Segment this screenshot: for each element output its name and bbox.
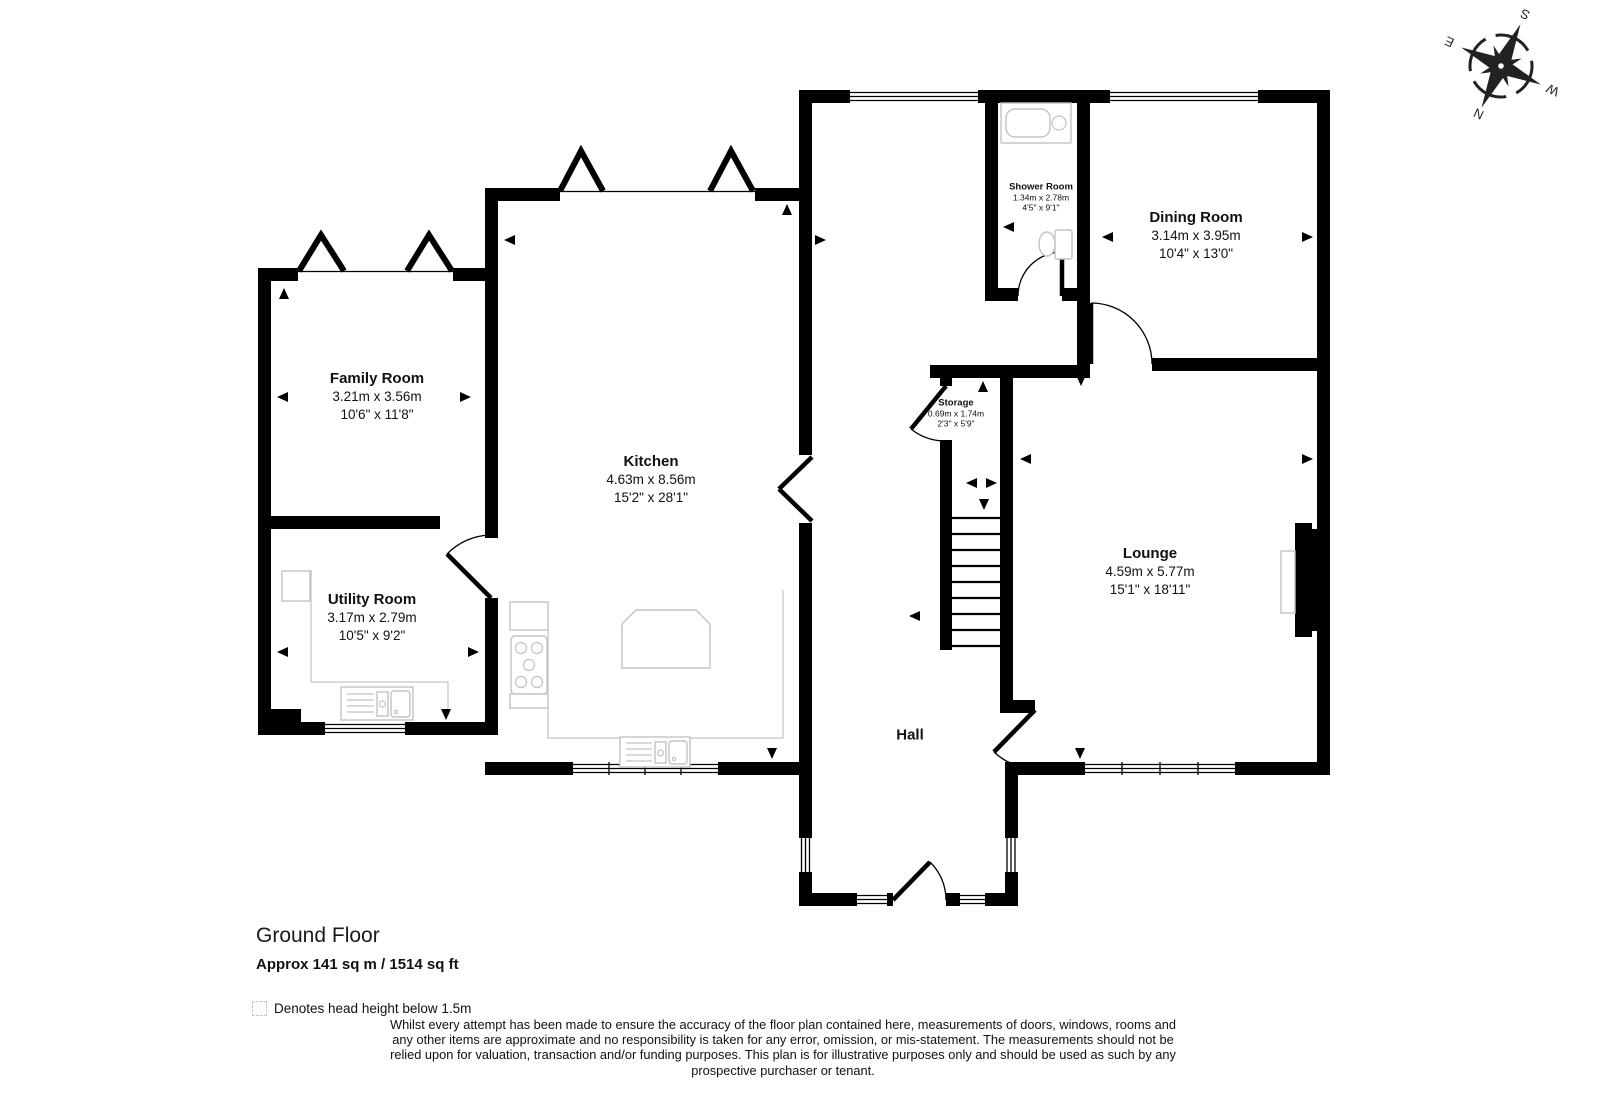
room-label-lounge: Lounge 4.59m x 5.77m 15'1" x 18'11"	[1105, 545, 1194, 599]
room-label-family-room: Family Room 3.21m x 3.56m 10'6" x 11'8"	[330, 370, 424, 424]
room-metric-dims: 1.34m x 2.78m	[1009, 193, 1073, 203]
room-name: Lounge	[1105, 545, 1194, 563]
chimney-breast	[1295, 523, 1317, 637]
room-imperial-dims: 15'1" x 18'11"	[1105, 581, 1194, 599]
room-label-hall: Hall	[896, 727, 924, 744]
kitchen-island	[622, 610, 710, 668]
room-imperial-dims: 10'4" x 13'0"	[1149, 245, 1242, 263]
room-metric-dims: 0.69m x 1.74m	[928, 409, 984, 419]
toilet	[1039, 232, 1055, 256]
hearth	[1281, 551, 1295, 613]
legend-note: Denotes head height below 1.5m	[274, 1001, 471, 1016]
room-name: Kitchen	[606, 453, 695, 471]
room-metric-dims: 4.63m x 8.56m	[606, 471, 695, 489]
lounge-fixtures	[1281, 551, 1295, 613]
room-name: Dining Room	[1149, 209, 1242, 227]
legend: Denotes head height below 1.5m	[252, 1001, 471, 1016]
disclaimer-text: Whilst every attempt has been made to en…	[378, 1017, 1188, 1078]
room-name: Utility Room	[327, 591, 416, 609]
floor-plan-drawing: N S E W	[0, 0, 1600, 1120]
compass-north-label: N	[1471, 105, 1486, 123]
floor-title: Ground Floor	[256, 924, 380, 948]
compass-east-label: E	[1442, 33, 1456, 50]
measure-arrow-icons	[277, 204, 1313, 759]
head-height-dashed-icon	[252, 1001, 267, 1016]
compass-south-label: S	[1518, 6, 1532, 23]
room-metric-dims: 4.59m x 5.77m	[1105, 563, 1194, 581]
room-label-dining-room: Dining Room 3.14m x 3.95m 10'4" x 13'0"	[1149, 209, 1242, 263]
room-label-utility-room: Utility Room 3.17m x 2.79m 10'5" x 9'2"	[327, 591, 416, 645]
kitchen-counter	[510, 602, 548, 630]
room-imperial-dims: 10'6" x 11'8"	[330, 406, 424, 424]
room-name: Storage	[928, 398, 984, 409]
room-label-shower-room: Shower Room 1.34m x 2.78m 4'5" x 9'1"	[1009, 182, 1073, 213]
room-imperial-dims: 2'3" x 5'9"	[928, 419, 984, 429]
compass-west-label: W	[1543, 80, 1561, 99]
room-label-storage: Storage 0.69m x 1.74m 2'3" x 5'9"	[928, 398, 984, 429]
kitchen-fixtures	[510, 590, 783, 767]
room-metric-dims: 3.14m x 3.95m	[1149, 227, 1242, 245]
utility-appliance	[282, 571, 310, 601]
room-imperial-dims: 10'5" x 9'2"	[327, 627, 416, 645]
staircase	[952, 518, 1000, 646]
bay-windows	[296, 151, 755, 272]
room-name: Family Room	[330, 370, 424, 388]
compass-rose-icon: N S E W	[1420, 0, 1586, 148]
room-label-kitchen: Kitchen 4.63m x 8.56m 15'2" x 28'1"	[606, 453, 695, 507]
room-name: Shower Room	[1009, 182, 1073, 193]
floor-plan-page: N S E W Family Room 3.21m x 3.56m 10'6" …	[0, 0, 1600, 1120]
room-metric-dims: 3.21m x 3.56m	[330, 388, 424, 406]
room-imperial-dims: 4'5" x 9'1"	[1009, 203, 1073, 213]
floor-area: Approx 141 sq m / 1514 sq ft	[256, 956, 459, 973]
room-metric-dims: 3.17m x 2.79m	[327, 609, 416, 627]
room-imperial-dims: 15'2" x 28'1"	[606, 489, 695, 507]
